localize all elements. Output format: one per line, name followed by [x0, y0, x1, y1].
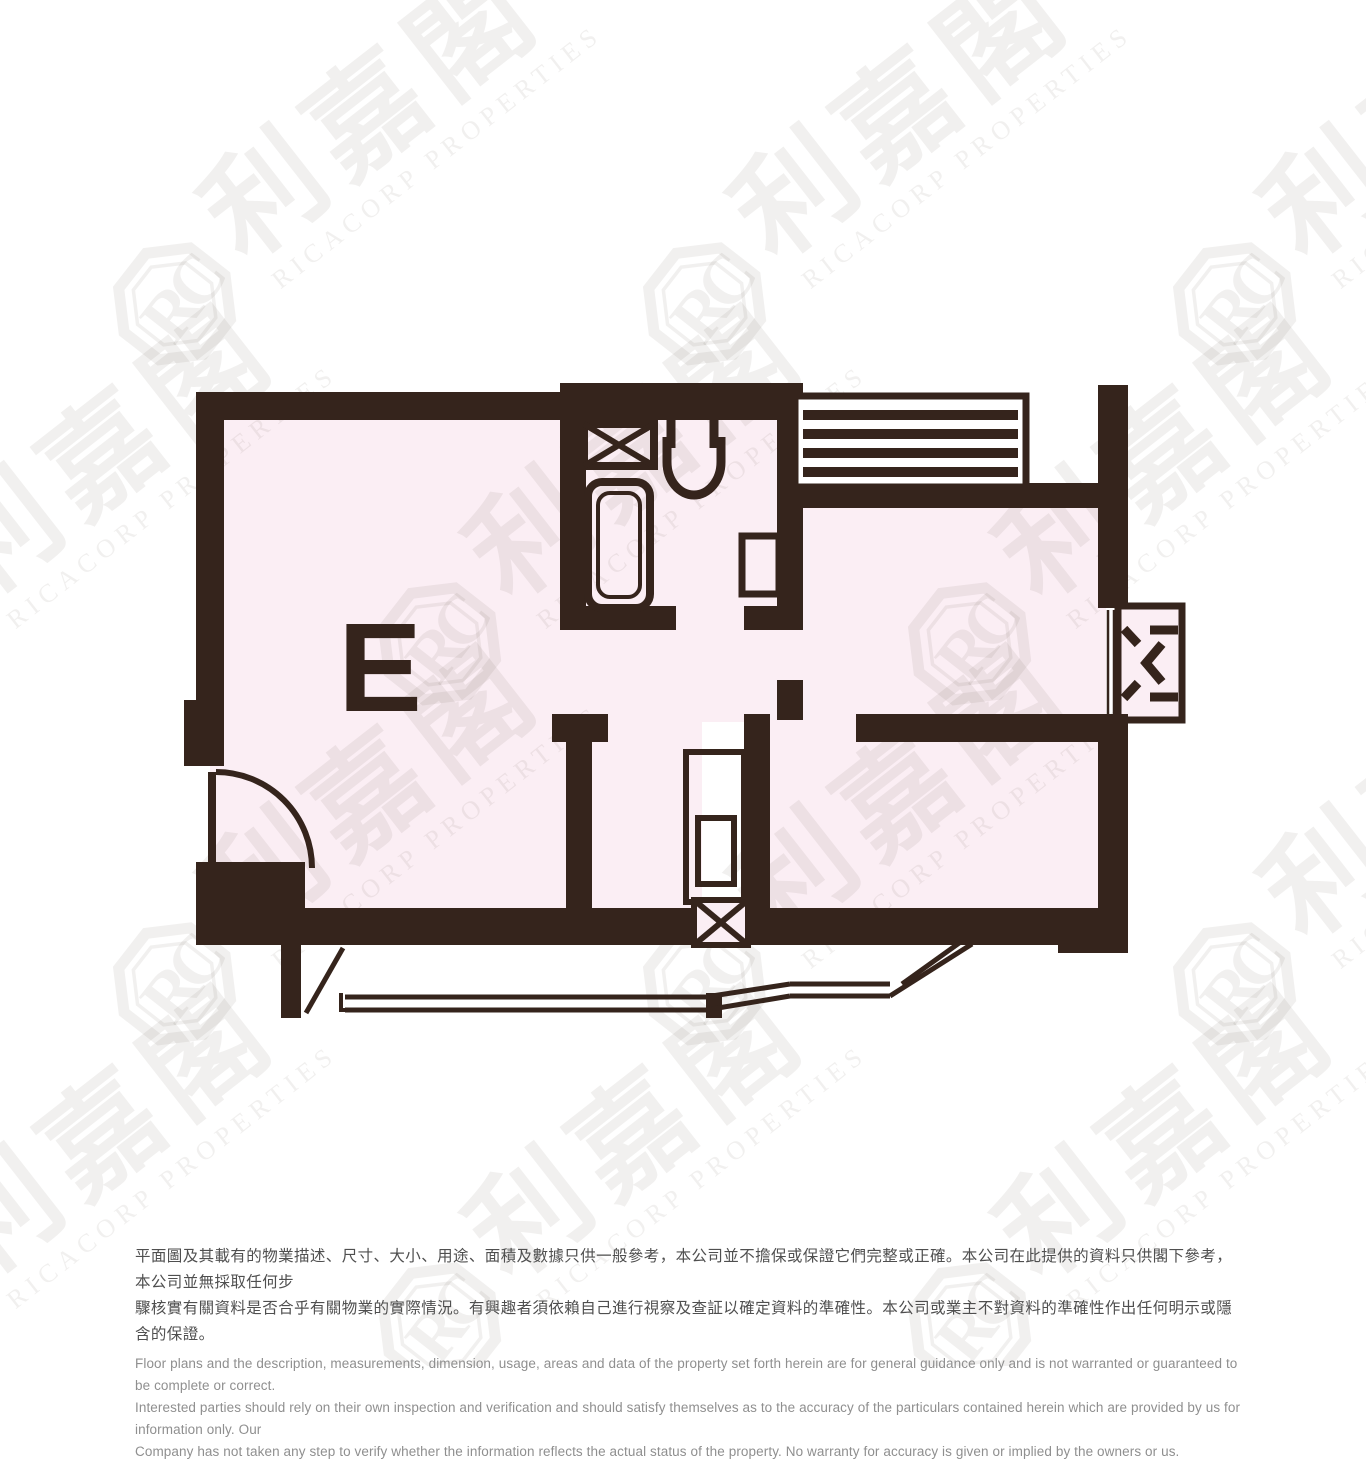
- wall-kitchen-left: [566, 714, 592, 940]
- wall-top-bathroom: [560, 383, 803, 420]
- disclaimer-block: 平面圖及其載有的物業描述、尺寸、大小、用途、面積及數據只供一般參考，本公司並不擔…: [135, 1244, 1247, 1463]
- floor-plan-canvas: RC 利嘉閣 RICACORP PROPERTIES: [0, 0, 1366, 1366]
- unit-label: E: [338, 597, 422, 738]
- wall-bedroom2-left: [744, 714, 770, 908]
- wall-right-lower: [1098, 716, 1128, 945]
- disclaimer-english: Floor plans and the description, measure…: [135, 1353, 1247, 1463]
- wall-left-protrusion: [184, 700, 224, 766]
- wall-left: [196, 392, 224, 705]
- wall-bottom-left-segment: [196, 908, 694, 945]
- kitchen-window-x-icon: [694, 900, 748, 945]
- disclaimer-chinese: 平面圖及其載有的物業描述、尺寸、大小、用途、面積及數據只供一般參考，本公司並不擔…: [135, 1244, 1247, 1348]
- wall-bathroom-bottom-right: [744, 606, 803, 630]
- wall-bedroom1-door-stub: [777, 680, 803, 720]
- wall-top-left: [196, 392, 566, 420]
- louver-platform-icon: [795, 396, 1026, 487]
- floor-plan-page: { "page": { "background_color": "#ffffff…: [0, 0, 1366, 1366]
- bay-window-icon: [281, 941, 972, 1018]
- corridor: [580, 618, 802, 722]
- wall-bedroom2-top: [856, 714, 1128, 742]
